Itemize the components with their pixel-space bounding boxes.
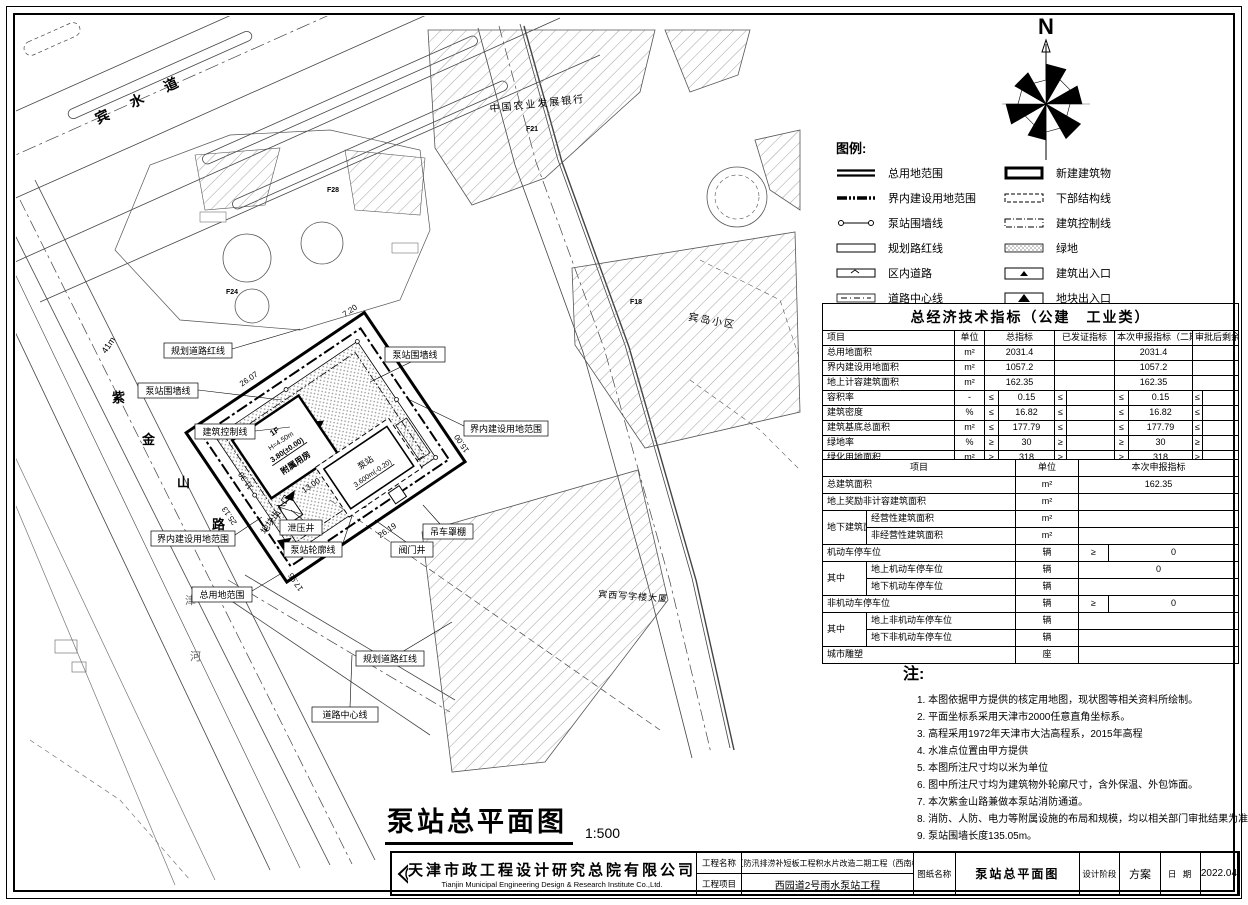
cell-unit: m²: [1016, 477, 1079, 494]
cell-value: 162.35: [1079, 477, 1239, 494]
note-item: 6. 图中所注尺寸均为建筑物外轮廓尺寸，含外保温、外包饰面。: [917, 777, 1237, 794]
river-name-2: 河: [190, 650, 201, 663]
cell-value: 0: [1109, 545, 1239, 562]
drawing-title: 泵站总平面图 1:500: [385, 800, 620, 845]
cell-value: [1079, 579, 1239, 596]
legend-symbol-building-entrance: [1004, 266, 1050, 280]
cell-total: 0.15: [999, 391, 1055, 406]
table-row: 非经营性建筑面积 m²: [823, 528, 1239, 545]
cell-cmp: ≤: [1193, 421, 1203, 436]
cell-remaining: [1203, 436, 1239, 451]
street-zijin-1: 紫: [112, 390, 125, 405]
callout-total-boundary: 总用地范围: [199, 589, 244, 600]
cell-unit: m²: [955, 376, 985, 391]
cell-cmp: ≥: [1079, 596, 1109, 613]
table-row: 机动车停车位 辆 ≥ 0: [823, 545, 1239, 562]
river: [0, 425, 215, 885]
cell-item: 建筑密度: [823, 406, 955, 421]
cell-group: 其中: [823, 613, 867, 647]
notes-title: 注:: [903, 660, 1237, 684]
note-item: 9. 泵站围墙长度135.05m。: [917, 828, 1237, 845]
cell-value: 0: [1109, 596, 1239, 613]
cell-group: 其中: [823, 562, 867, 596]
callout-valve-well: 阀门井: [398, 544, 425, 555]
project-name-label: 工程名称: [697, 853, 742, 873]
cell-certified: [1067, 391, 1115, 406]
cell-current: 30: [1129, 436, 1193, 451]
dim-41m: 41m: [99, 335, 117, 355]
cell-unit: m²: [955, 346, 985, 361]
table-row: 地下建筑面积 经营性建筑面积 m²: [823, 511, 1239, 528]
indicators-title: 总经济技术指标（公建 工业类）: [823, 304, 1239, 331]
date-value: 2022.04: [1201, 853, 1238, 894]
note-item: 3. 高程采用1972年天津市大沽高程系，2015年高程: [917, 726, 1237, 743]
legend-symbol-fence: [836, 216, 882, 230]
legend-label: 区内道路: [888, 265, 998, 281]
drawing-name-value: 泵站总平面图: [956, 853, 1081, 894]
project-item-value: 西园道2号雨水泵站工程: [742, 874, 913, 894]
cell-item: 绿地率: [823, 436, 955, 451]
cell-current: 1057.2: [1115, 361, 1193, 376]
cell-item: 建筑基底总面积: [823, 421, 955, 436]
cell-remaining: [1203, 421, 1239, 436]
cell-cmp: ≤: [1115, 406, 1129, 421]
col-header-value: 本次申报指标: [1079, 460, 1239, 477]
cell-value: [1079, 528, 1239, 545]
cell-group: 地下建筑面积: [823, 511, 867, 545]
cell-certified: [1055, 346, 1115, 361]
cell-item: 地上机动车停车位: [867, 562, 1016, 579]
cell-item: 总用地面积: [823, 346, 955, 361]
drawing-title-text: 泵站总平面图: [385, 800, 573, 845]
callout-inner-boundary-right: 界内建设用地范围: [470, 423, 542, 434]
company-cell: 天津市政工程设计研究总院有限公司 Tianjin Municipal Engin…: [392, 853, 697, 894]
cell-current: 16.82: [1129, 406, 1193, 421]
legend-label: 界内建设用地范围: [888, 190, 998, 206]
drawing-scale: 1:500: [585, 825, 620, 845]
cell-remaining: [1193, 376, 1239, 391]
col-header-unit: 单位: [1016, 460, 1079, 477]
company-name-en: Tianjin Municipal Engineering Design & R…: [408, 880, 696, 889]
legend-label: 新建建筑物: [1056, 165, 1176, 181]
legend-symbol-internal-road: [836, 266, 882, 280]
cell-unit: m²: [1016, 494, 1079, 511]
table-row: 绿地率 % ≥30 ≥ ≥30 ≥: [823, 436, 1239, 451]
cell-unit: m²: [1016, 528, 1079, 545]
company-logo-icon: [396, 856, 408, 892]
callout-road-center: 道路中心线: [322, 709, 367, 720]
cell-item: 界内建设用地面积: [823, 361, 955, 376]
drawing-name-label: 图纸名称: [914, 853, 956, 894]
cell-certified: [1055, 361, 1115, 376]
col-header-certified: 已发证指标: [1055, 331, 1115, 346]
drawing-sheet: 中国农业发展银行 宾岛小区 宾西写字楼大厦 F18 F21 F24 F28: [0, 0, 1248, 905]
legend-symbol-total-land: [836, 166, 882, 180]
cell-item: 经营性建筑面积: [867, 511, 1016, 528]
street-zijin-4: 路: [212, 517, 226, 532]
table-row: 总建筑面积 m² 162.35: [823, 477, 1239, 494]
col-header-unit: 单位: [955, 331, 985, 346]
legend-label: 规划路红线: [888, 240, 998, 256]
cell-remaining: [1193, 361, 1239, 376]
street-zijin-3: 山: [177, 475, 190, 490]
city-blocks: [115, 30, 800, 772]
cell-unit: 辆: [1016, 630, 1079, 647]
legend-symbol-inner-boundary: [836, 191, 882, 205]
parcel-label-f24: F24: [226, 289, 238, 296]
cell-certified: [1067, 406, 1115, 421]
table-row: 建筑密度 % ≤16.82 ≤ ≤16.82 ≤: [823, 406, 1239, 421]
cell-unit: m²: [955, 421, 985, 436]
cell-total: 30: [999, 436, 1055, 451]
notes: 注: 1. 本图依据甲方提供的核定用地图，现状图等相关资料所绘制。 2. 平面坐…: [903, 660, 1237, 845]
cell-cmp: ≤: [1193, 406, 1203, 421]
cell-unit: -: [955, 391, 985, 406]
cell-certified: [1067, 436, 1115, 451]
legend: 图例: 总用地范围 新建建筑物 界内建设用地范围 下部结构线 泵站围墙线: [836, 138, 1236, 306]
cell-unit: m²: [955, 361, 985, 376]
title-block: 天津市政工程设计研究总院有限公司 Tianjin Municipal Engin…: [390, 851, 1240, 896]
cell-total: 2031.4: [985, 346, 1055, 361]
cell-cmp: ≤: [1055, 406, 1067, 421]
col-header-item: 项目: [823, 460, 1016, 477]
dim-26-19: 26.19: [376, 521, 398, 540]
callout-inner-boundary-left: 界内建设用地范围: [157, 533, 229, 544]
table-row: 总用地面积 m² 2031.4 2031.4: [823, 346, 1239, 361]
parcel-label-f28: F28: [327, 187, 339, 194]
cell-certified: [1067, 421, 1115, 436]
note-item: 4. 水准点位置由甲方提供: [917, 743, 1237, 760]
callout-fence-left: 泵站围墙线: [145, 385, 190, 396]
cell-unit: %: [955, 436, 985, 451]
legend-symbol-substructure: [1004, 191, 1050, 205]
cell-remaining: [1193, 346, 1239, 361]
cell-value: [1079, 494, 1239, 511]
legend-label: 泵站围墙线: [888, 215, 998, 231]
cell-remaining: [1203, 406, 1239, 421]
callout-fence-right: 泵站围墙线: [392, 349, 437, 360]
note-item: 5. 本图所注尺寸均以米为单位: [917, 760, 1237, 777]
cell-current: 0.15: [1129, 391, 1193, 406]
table-row: 地下机动车停车位 辆: [823, 579, 1239, 596]
cell-current: 177.79: [1129, 421, 1193, 436]
callout-crane-canopy: 吊车罩棚: [430, 526, 466, 537]
cell-item: 地上计容建筑面积: [823, 376, 955, 391]
stage-label: 设计阶段: [1080, 853, 1120, 894]
cell-remaining: [1203, 391, 1239, 406]
cell-item: 非机动车停车位: [823, 596, 1016, 613]
cell-cmp: ≤: [1055, 421, 1067, 436]
cell-value: 0: [1079, 562, 1239, 579]
street-zijin-2: 金: [141, 432, 156, 447]
legend-label: 绿地: [1056, 240, 1176, 256]
cell-cmp: ≤: [1193, 391, 1203, 406]
cell-item: 地上非机动车停车位: [867, 613, 1016, 630]
legend-symbol-building-control: [1004, 216, 1050, 230]
cell-total: 177.79: [999, 421, 1055, 436]
cell-unit: 辆: [1016, 545, 1079, 562]
cell-total: 16.82: [999, 406, 1055, 421]
cell-unit: 辆: [1016, 613, 1079, 630]
legend-title: 图例:: [836, 138, 1236, 157]
note-item: 2. 平面坐标系采用天津市2000任意直角坐标系。: [917, 709, 1237, 726]
cell-unit: 辆: [1016, 562, 1079, 579]
legend-label: 下部结构线: [1056, 190, 1176, 206]
cell-current: 162.35: [1115, 376, 1193, 391]
project-item-label: 工程项目: [697, 874, 742, 894]
cell-cmp: ≤: [1115, 421, 1129, 436]
note-item: 1. 本图依据甲方提供的核定用地图，现状图等相关资料所绘制。: [917, 692, 1237, 709]
project-cell: 工程名称 中心城区防汛排涝补短板工程积水片改造二期工程（西南楼地区） 工程项目 …: [697, 853, 914, 894]
cell-unit: m²: [1016, 511, 1079, 528]
table-row: 地下非机动车停车位 辆: [823, 630, 1239, 647]
table-row: 其中 地上非机动车停车位 辆: [823, 613, 1239, 630]
street-binshui: 宾 水 道: [93, 70, 190, 127]
cell-cmp: ≥: [1055, 436, 1067, 451]
note-item: 7. 本次紫金山路兼做本泵站消防通道。: [917, 794, 1237, 811]
cell-current: 2031.4: [1115, 346, 1193, 361]
cell-item: 容积率: [823, 391, 955, 406]
cell-item: 总建筑面积: [823, 477, 1016, 494]
cell-cmp: ≤: [985, 391, 999, 406]
legend-symbol-red-line: [836, 241, 882, 255]
legend-symbol-new-building: [1004, 166, 1050, 180]
parcel-label-f18: F18: [630, 299, 642, 306]
stage-value: 方案: [1120, 853, 1162, 894]
declaration-table: 项目 单位 本次申报指标 总建筑面积 m² 162.35 地上奖励非计容建筑面积…: [822, 459, 1239, 664]
col-header-current: 本次申报指标（二期）: [1115, 331, 1193, 346]
cell-unit: 辆: [1016, 579, 1079, 596]
cell-unit: 辆: [1016, 596, 1079, 613]
cell-cmp: ≥: [1079, 545, 1109, 562]
cell-cmp: ≤: [985, 406, 999, 421]
cell-item: 地上奖励非计容建筑面积: [823, 494, 1016, 511]
project-name-value: 中心城区防汛排涝补短板工程积水片改造二期工程（西南楼地区）: [742, 853, 913, 873]
date-label: 日 期: [1161, 853, 1201, 894]
note-item: 8. 消防、人防、电力等附属设施的布局和规模，均以相关部门审批结果为准。: [917, 811, 1237, 828]
wind-rose-icon: [1006, 64, 1082, 140]
callout-planning-red-line-bottom: 规划道路红线: [363, 653, 417, 664]
legend-label: 建筑出入口: [1056, 265, 1176, 281]
company-name-cn: 天津市政工程设计研究总院有限公司: [408, 859, 696, 880]
cell-unit: %: [955, 406, 985, 421]
col-header-total: 总指标: [985, 331, 1055, 346]
col-header-remaining: 审批后剩余指标: [1193, 331, 1239, 346]
callout-building-control: 建筑控制线: [202, 426, 247, 437]
cell-item: 非经营性建筑面积: [867, 528, 1016, 545]
table-row: 地上奖励非计容建筑面积 m²: [823, 494, 1239, 511]
table-row: 建筑基底总面积 m² ≤177.79 ≤ ≤177.79 ≤: [823, 421, 1239, 436]
cell-value: [1079, 613, 1239, 630]
callout-relief-well: 泄压井: [287, 522, 314, 533]
cell-value: [1079, 511, 1239, 528]
cell-cmp: ≥: [1193, 436, 1203, 451]
cell-cmp: ≥: [1115, 436, 1129, 451]
callout-planning-red-line-top: 规划道路红线: [171, 345, 225, 356]
table-row: 非机动车停车位 辆 ≥ 0: [823, 596, 1239, 613]
parcel-label-f21: F21: [526, 126, 538, 133]
cell-cmp: ≤: [985, 421, 999, 436]
legend-label: 总用地范围: [888, 165, 998, 181]
cell-cmp: ≥: [985, 436, 999, 451]
table-row: 地上计容建筑面积 m² 162.35 162.35: [823, 376, 1239, 391]
table-row: 容积率 - ≤0.15 ≤ ≤0.15 ≤: [823, 391, 1239, 406]
legend-symbol-green-area: [1004, 241, 1050, 255]
north-label: N: [1038, 14, 1054, 39]
cell-item: 机动车停车位: [823, 545, 1016, 562]
cell-cmp: ≤: [1115, 391, 1129, 406]
legend-label: 建筑控制线: [1056, 215, 1176, 231]
col-header-item: 项目: [823, 331, 955, 346]
callout-pump-outline: 泵站轮廓线: [290, 544, 335, 555]
cell-total: 162.35: [985, 376, 1055, 391]
table-row: 界内建设用地面积 m² 1057.2 1057.2: [823, 361, 1239, 376]
cell-value: [1079, 630, 1239, 647]
cell-item: 地下机动车停车位: [867, 579, 1016, 596]
cell-total: 1057.2: [985, 361, 1055, 376]
indicators-table: 总经济技术指标（公建 工业类） 项目 单位 总指标 已发证指标 本次申报指标（二…: [822, 303, 1239, 466]
table-row: 其中 地上机动车停车位 辆 0: [823, 562, 1239, 579]
cell-item: 地下非机动车停车位: [867, 630, 1016, 647]
cell-cmp: ≤: [1055, 391, 1067, 406]
cell-certified: [1055, 376, 1115, 391]
